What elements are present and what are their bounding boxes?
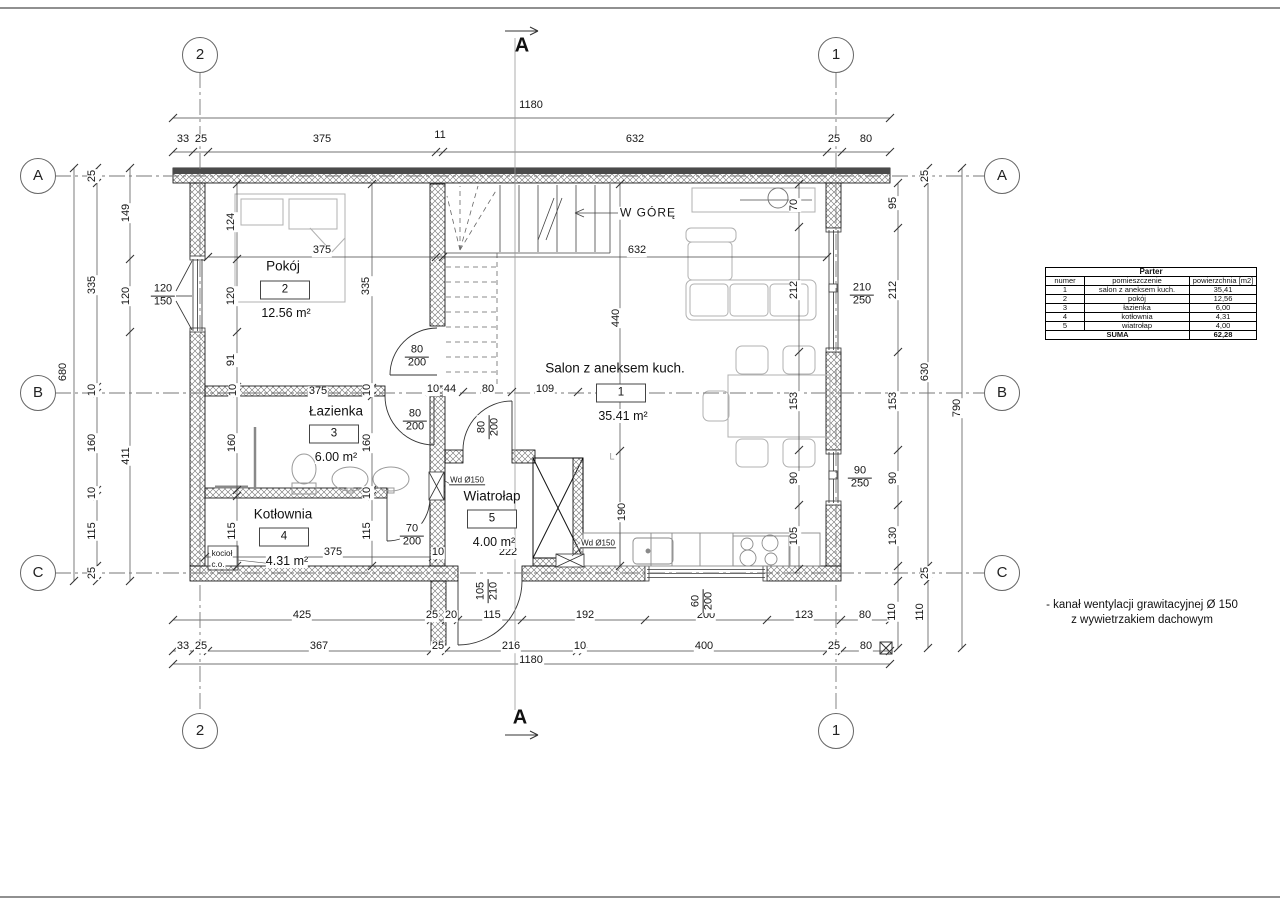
dim-label: 1180	[518, 100, 544, 112]
dim-label: 90	[888, 471, 900, 485]
note-line-2: z wywietrzakiem dachowym	[1022, 613, 1262, 628]
dim-label: 216	[501, 641, 521, 653]
dim-label: 149	[121, 203, 133, 223]
dim-label: 160	[87, 433, 99, 453]
room-name: Wiatroł​ap	[463, 489, 520, 504]
room-number-tag: 4	[259, 528, 309, 547]
dim-label: 335	[87, 275, 99, 295]
dim-label: 632	[625, 134, 645, 146]
fraction-top: 80	[403, 409, 427, 422]
fraction-bottom: 250	[850, 296, 874, 308]
dim-label: 120	[121, 286, 133, 306]
dim-label: 95	[888, 196, 900, 210]
dim-label: 115	[362, 521, 374, 541]
dim-label: 109	[535, 384, 555, 396]
dim-label: 10	[573, 641, 587, 653]
fraction-top: 105	[476, 579, 489, 603]
fraction-top: 80	[477, 415, 490, 439]
fraction-top: 80	[405, 345, 429, 358]
dim-label: 123	[794, 610, 814, 622]
ventilation-note: - kanał wentylacji grawitacyjnej Ø 150 z…	[1022, 598, 1262, 628]
room-schedule-table: Parternumerpomieszczeniepowierzchnia [m2…	[1045, 267, 1257, 340]
dim-label: 10	[362, 383, 374, 397]
axis-marker-2: 2	[182, 713, 218, 749]
dim-label: 10	[87, 486, 99, 500]
dim-label: 105	[789, 526, 801, 546]
dim-label: 25	[827, 641, 841, 653]
axis-marker-C: C	[20, 555, 56, 591]
axis-marker-A: A	[20, 158, 56, 194]
dim-label: 160	[227, 433, 239, 453]
fraction-bottom: 200	[490, 415, 502, 439]
room-number-tag: 2	[260, 281, 310, 300]
dim-label: 80	[858, 610, 872, 622]
note-line-1: - kanał wentylacji grawitacyjnej Ø 150	[1022, 598, 1262, 613]
dim-label: 212	[888, 280, 900, 300]
dim-label: 1180	[518, 655, 544, 667]
dim-fraction: 210250	[850, 283, 874, 308]
table-cell: 5	[1046, 322, 1085, 331]
dim-label: 192	[575, 610, 595, 622]
dim-fraction: 120150	[151, 284, 175, 309]
dim-label: 80	[859, 134, 873, 146]
dim-fraction: 105210	[476, 579, 501, 603]
dim-label: 33	[176, 134, 190, 146]
dim-fraction: 60200	[691, 589, 716, 613]
dim-label: 70	[789, 198, 801, 212]
room-area: 4.00 m²	[473, 535, 515, 549]
dim-label: 632	[627, 245, 647, 257]
dim-label: 25	[920, 169, 932, 183]
axis-marker-C: C	[984, 555, 1020, 591]
fraction-bottom: 150	[151, 297, 175, 309]
dim-label: 212	[789, 280, 801, 300]
table-cell: 62,28	[1190, 331, 1257, 340]
fraction-bottom: 200	[704, 589, 716, 613]
top-wall-core	[173, 168, 890, 174]
dim-label: 160	[362, 433, 374, 453]
text-label: c.o.	[211, 561, 226, 569]
room-number-tag: 1	[596, 384, 646, 403]
axis-marker-1: 1	[818, 37, 854, 73]
dim-fraction: 70200	[400, 524, 424, 549]
dim-label: 25	[194, 134, 208, 146]
dim-label: 25	[920, 566, 932, 580]
dim-label: 411	[121, 446, 133, 466]
axis-marker-A: A	[984, 158, 1020, 194]
dim-label: 120	[226, 286, 238, 306]
axis-marker-2: 2	[182, 37, 218, 73]
dim-label: 25	[87, 169, 99, 183]
fraction-top: 210	[850, 283, 874, 296]
axis-marker-B: B	[20, 375, 56, 411]
dim-label: 44	[443, 384, 457, 396]
dim-label: 25	[425, 610, 439, 622]
dim-label: 124	[226, 212, 238, 232]
room-name: Łazienka	[309, 404, 363, 419]
axis-marker-B: B	[984, 375, 1020, 411]
room-name: Kotłownia	[254, 507, 313, 522]
room-area: 35.41 m²	[598, 409, 647, 423]
text-label: W GÓRĘ	[619, 207, 677, 220]
dim-label: 375	[323, 547, 343, 559]
dim-label: 10	[362, 486, 374, 500]
dim-label: 375	[308, 386, 328, 398]
room-area: 6.00 m²	[315, 450, 357, 464]
fraction-bottom: 200	[400, 537, 424, 549]
dim-label: 25	[431, 641, 445, 653]
dim-label: 80	[859, 641, 873, 653]
dim-label: 10	[426, 384, 440, 396]
dim-label: 375	[312, 134, 332, 146]
section-marker-bottom: A	[513, 707, 527, 730]
dim-label: 20	[444, 610, 458, 622]
dim-label: 110	[915, 602, 927, 622]
dim-label: 190	[617, 502, 629, 522]
dim-label: 10	[228, 383, 240, 397]
dim-label: 153	[888, 391, 900, 411]
dim-label: 115	[227, 521, 239, 541]
dim-fraction: 80200	[403, 409, 427, 434]
dim-label: 10	[431, 547, 445, 559]
text-label: Wd Ø150	[449, 476, 485, 485]
dim-label: 110	[887, 602, 899, 622]
table-cell: SUMA	[1046, 331, 1190, 340]
dim-fraction: 80200	[477, 415, 502, 439]
room-number-tag: 5	[467, 510, 517, 529]
fraction-bottom: 200	[405, 358, 429, 370]
dim-label: 130	[888, 526, 900, 546]
dim-label: 115	[482, 610, 502, 622]
dim-label: 375	[312, 245, 332, 257]
dim-label: 153	[789, 391, 801, 411]
dim-label: 25	[87, 566, 99, 580]
text-label: kocioł	[211, 550, 233, 558]
text-label: Wd Ø150	[580, 539, 616, 548]
floor-plan-sheet: Parternumerpomieszczeniepowierzchnia [m2…	[0, 0, 1280, 905]
dim-label: 335	[361, 276, 373, 296]
dim-label: 400	[694, 641, 714, 653]
table-cell: wiatrołap	[1085, 322, 1190, 331]
stairs	[445, 184, 618, 386]
room-name: Pokój	[266, 259, 300, 274]
dim-label: 25	[827, 134, 841, 146]
dim-label: 10	[87, 383, 99, 397]
fraction-bottom: 200	[403, 422, 427, 434]
dim-label: 425	[292, 610, 312, 622]
dim-label: 25	[194, 641, 208, 653]
room-area: 4.31 m²	[266, 554, 308, 568]
axis-marker-1: 1	[818, 713, 854, 749]
dim-label: 80	[481, 384, 495, 396]
dim-label: 367	[309, 641, 329, 653]
section-marker-top: A	[515, 35, 529, 58]
dim-label: 630	[920, 362, 932, 382]
room-area: 12.56 m²	[261, 306, 310, 320]
dim-label: 33	[176, 641, 190, 653]
dim-label: 91	[226, 353, 238, 367]
fraction-top: 90	[848, 466, 872, 479]
dim-label: 115	[87, 521, 99, 541]
fraction-top: 120	[151, 284, 175, 297]
text-label: L	[608, 452, 615, 461]
room-name: Salon z aneksem kuch.	[545, 361, 685, 376]
fraction-bottom: 250	[848, 479, 872, 491]
dim-fraction: 80200	[405, 345, 429, 370]
dim-label: 90	[789, 471, 801, 485]
dim-fraction: 90250	[848, 466, 872, 491]
fraction-top: 60	[691, 589, 704, 613]
dim-label: 440	[611, 308, 623, 328]
room-number-tag: 3	[309, 425, 359, 444]
dim-label: 790	[952, 398, 964, 418]
fraction-bottom: 210	[489, 579, 501, 603]
fraction-top: 70	[400, 524, 424, 537]
dim-label: 11	[433, 130, 446, 142]
dim-label: 680	[58, 362, 70, 382]
